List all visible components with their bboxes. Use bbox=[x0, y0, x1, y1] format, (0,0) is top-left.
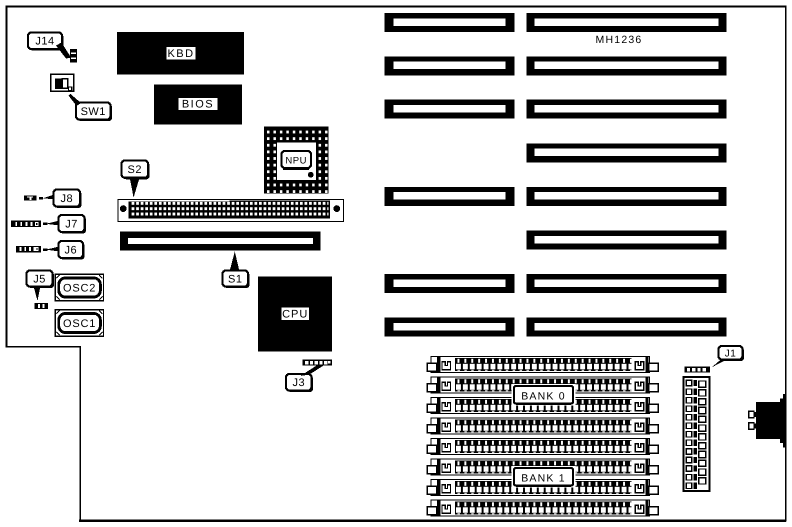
svg-text:J1: J1 bbox=[725, 348, 737, 359]
svg-text:J5: J5 bbox=[33, 273, 46, 285]
svg-text:J6: J6 bbox=[64, 244, 77, 256]
svg-text:MH1236: MH1236 bbox=[596, 34, 643, 46]
svg-text:OSC2: OSC2 bbox=[63, 282, 96, 294]
svg-text:CPU: CPU bbox=[282, 309, 308, 321]
svg-text:SW1: SW1 bbox=[81, 106, 106, 118]
svg-text:J3: J3 bbox=[292, 377, 305, 389]
svg-text:S2: S2 bbox=[128, 164, 142, 176]
svg-text:KBD: KBD bbox=[167, 48, 194, 60]
svg-text:J8: J8 bbox=[60, 193, 73, 205]
svg-text:S1: S1 bbox=[228, 273, 242, 285]
svg-text:BANK 0: BANK 0 bbox=[521, 391, 566, 403]
svg-text:J7: J7 bbox=[65, 218, 78, 230]
svg-text:OSC1: OSC1 bbox=[63, 318, 96, 330]
svg-text:J14: J14 bbox=[35, 36, 54, 48]
svg-text:NPU: NPU bbox=[285, 155, 307, 166]
svg-text:BANK 1: BANK 1 bbox=[521, 473, 566, 485]
svg-text:BIOS: BIOS bbox=[182, 99, 214, 111]
